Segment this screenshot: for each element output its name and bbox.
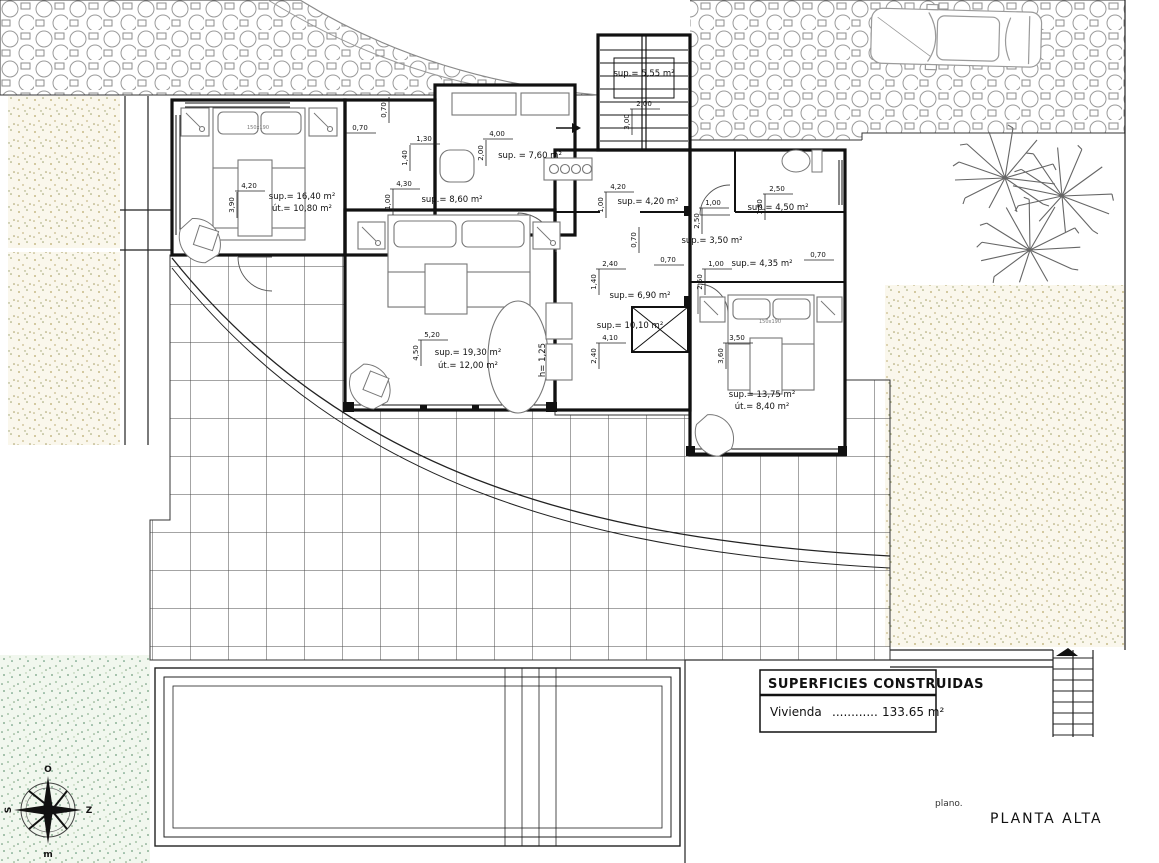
dimension-value: 1,80 [756, 199, 764, 215]
dimension-value: 1,30 [416, 135, 432, 143]
title-block-dots: ............ [832, 705, 878, 719]
dimension-value: 1,40 [401, 150, 409, 166]
label-dressing-sup: sup.= 3,50 m² [681, 236, 742, 246]
dimension-value: 3,00 [623, 114, 631, 130]
dimension-value: 4,20 [610, 183, 626, 191]
label-bedroom1-util: út.= 10,80 m² [272, 204, 332, 214]
dimension-value: 1,00 [384, 194, 392, 210]
compass-top: O [44, 765, 52, 775]
label-master-height: h= 1,25 [538, 343, 548, 377]
label-bedroom3-sup: sup.= 13,75 m² [729, 390, 795, 400]
dimension-value: 0,70 [810, 251, 826, 259]
label-bedroom1-sup: sup.= 16,40 m² [269, 192, 335, 202]
plan-caption: plano. PLANTA ALTA [935, 799, 1103, 827]
dimension-value: 2,40 [590, 348, 598, 364]
car-icon [870, 3, 1042, 72]
furniture-size-label: 150x190 [759, 319, 781, 325]
dimension-value: 4,10 [602, 334, 618, 342]
floor-plan-page: sup.= 16,40 m² út.= 10,80 m² sup.= 19,30… [0, 0, 1159, 863]
dimension-value: 2,00 [477, 145, 485, 161]
dimension-value: 5,20 [424, 331, 440, 339]
title-block-vivienda: Vivienda [770, 705, 822, 719]
compass-left: S [4, 807, 14, 813]
title-block-header: SUPERFICIES CONSTRUIDAS [768, 677, 984, 692]
palm-garden-bed [862, 140, 1125, 285]
label-hallway-sup: sup.= 8,60 m² [421, 195, 482, 205]
dimension-value: 0,70 [630, 232, 638, 248]
label-stairs-sup: sup.= 5,55 m² [613, 69, 674, 79]
title-block-value: 133.65 m² [882, 705, 944, 719]
exterior-stairs [1053, 648, 1093, 737]
lawn-area [0, 655, 150, 863]
bed-master [358, 215, 560, 314]
swimming-pool [155, 668, 680, 846]
dimension-value: 4,20 [241, 182, 257, 190]
toilet-icon [782, 150, 822, 172]
label-landing-sup: sup.= 4,20 m² [617, 197, 678, 207]
dimension-value: 4,00 [489, 130, 505, 138]
dimension-value: 2,40 [602, 260, 618, 268]
label-distrib-sup: sup.= 10,10 m² [597, 321, 663, 331]
dimension-value: 0,70 [660, 256, 676, 264]
dimension-value: 4,30 [396, 180, 412, 188]
dimension-value: 3,50 [729, 334, 745, 342]
label-corridor-sup: sup.= 4,35 m² [731, 259, 792, 269]
dimension-value: 2,50 [696, 274, 704, 290]
dimension-value: 3,60 [717, 348, 725, 364]
dimension-value: 2,50 [769, 185, 785, 193]
dimension-value: 1,00 [708, 260, 724, 268]
compass-right: Z [86, 806, 93, 816]
dimension-value: 2,00 [636, 100, 652, 108]
dimension-value: 1,00 [597, 197, 605, 213]
dimension-value: 1,00 [705, 199, 721, 207]
dimension-value: 3,90 [228, 197, 236, 213]
dimension-value: 0,70 [380, 102, 388, 118]
label-bedroom3-util: út.= 8,40 m² [735, 402, 790, 412]
plan-title: PLANTA ALTA [990, 811, 1103, 827]
title-block: SUPERFICIES CONSTRUIDAS Vivienda .......… [760, 670, 984, 732]
furniture-size-label: 150x190 [247, 125, 269, 131]
label-master-util: út.= 12,00 m² [438, 361, 498, 371]
compass-bottom: m [43, 850, 52, 860]
dimension-value: 0,70 [352, 124, 368, 132]
label-master-sup: sup.= 19,30 m² [435, 348, 501, 358]
floor-plan-canvas: sup.= 16,40 m² út.= 10,80 m² sup.= 19,30… [0, 0, 1159, 863]
dimension-value: 4,50 [412, 345, 420, 361]
label-kitchen-sup: sup. = 7,60 m² [498, 151, 562, 161]
dimension-value: 2,50 [693, 213, 701, 229]
stair-direction-arrow [1056, 648, 1078, 656]
label-innerhall-sup: sup.= 6,90 m² [609, 291, 670, 301]
dimension-value: 1,40 [590, 274, 598, 290]
plan-caption-prefix: plano. [935, 799, 963, 809]
